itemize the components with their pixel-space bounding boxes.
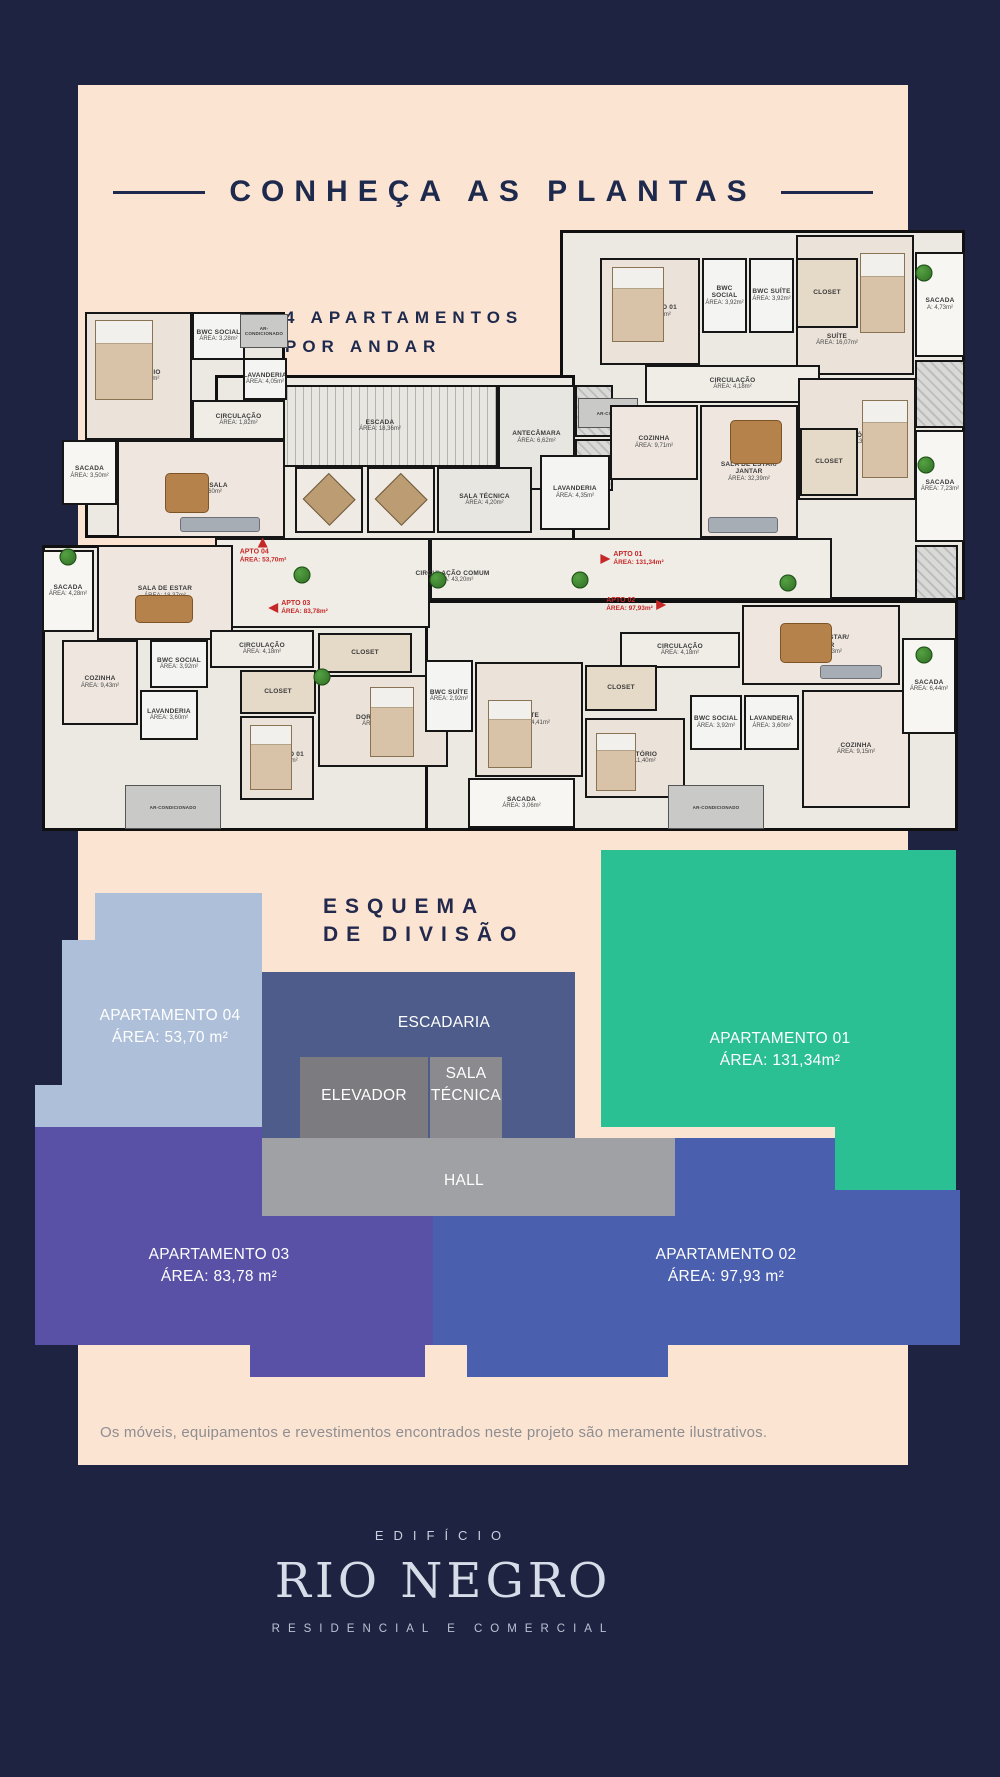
plan-room <box>915 545 958 600</box>
esquema-block-ap03 <box>250 1345 425 1377</box>
arrow-left-icon <box>268 603 278 613</box>
bed-furniture <box>596 733 636 791</box>
plan-room: CIRCULAÇÃOÁREA: 4,18m² <box>645 365 820 403</box>
plan-room: SACADAÁREA: 7,23m² <box>915 430 965 542</box>
plan-room: SALA DE ESTARÁREA: 18,37m² <box>97 545 233 640</box>
heading-line-1: ESQUEMA <box>323 893 524 921</box>
plan-room: AR-CONDICIONADO <box>125 785 221 829</box>
plan-room: CLOSET <box>240 670 316 714</box>
plant-icon <box>572 572 589 589</box>
bed-furniture <box>488 700 532 768</box>
footer-brand-name: RIO NEGRO <box>143 1555 743 1607</box>
plan-room: CLOSET <box>800 428 858 496</box>
esquema-block-ap02 <box>675 1138 835 1345</box>
plan-room: CLOSET <box>318 633 412 673</box>
plan-room: SALA TÉCNICAÁREA: 4,20m² <box>437 467 532 533</box>
plant-icon <box>314 669 331 686</box>
footer-building-label: EDIFÍCIO <box>143 1528 743 1543</box>
disclaimer-text: Os móveis, equipamentos e revestimentos … <box>100 1424 840 1441</box>
apto-marker: APTO 01ÁREA: 131,34m² <box>600 551 663 567</box>
plan-room: CLOSET <box>796 258 858 328</box>
plant-icon <box>780 575 797 592</box>
floor-plan: CIRCULAÇÃO COMUMÁREA: 43,20m²ESCADAÁREA:… <box>40 225 965 835</box>
sofa-furniture <box>820 665 882 679</box>
plan-room: CIRCULAÇÃOÁREA: 4,18m² <box>620 632 740 668</box>
esquema-label-escadaria: ESCADARIA <box>294 1012 594 1034</box>
plan-room: BWC SUÍTEÁREA: 2,92m² <box>425 660 473 732</box>
title-dash-left <box>113 191 205 194</box>
title-row: CONHEÇA AS PLANTAS <box>78 175 908 209</box>
plan-room: COZINHAÁREA: 9,43m² <box>62 640 138 725</box>
plan-room: CIRCULAÇÃOÁREA: 1,82m² <box>192 400 285 440</box>
esquema-label-ap03: APARTAMENTO 03ÁREA: 83,78 m² <box>69 1244 369 1288</box>
title-dash-right <box>781 191 873 194</box>
plan-room: SACADAÁREA: 3,50m² <box>62 440 117 505</box>
footer-logo: EDIFÍCIO RIO NEGRO RESIDENCIAL E COMERCI… <box>143 1528 743 1635</box>
esquema-label-sala-tecnica: SALATÉCNICA <box>316 1063 616 1107</box>
plan-room: COZINHAÁREA: 9,71m² <box>610 405 698 480</box>
apto-marker: APTO 02ÁREA: 97,93m² <box>606 597 666 613</box>
esquema-block-ap02 <box>467 1345 668 1377</box>
plan-room: ELEVADOR <box>367 467 435 533</box>
esquema-block-ap03 <box>35 1127 262 1216</box>
table-furniture <box>135 595 193 623</box>
heading-line-2: DE DIVISÃO <box>323 921 524 949</box>
plan-room: BWC SOCIALÁREA: 3,92m² <box>150 640 208 688</box>
plan-room: CLOSET <box>585 665 657 711</box>
esquema-label-ap04: APARTAMENTO 04ÁREA: 53,70 m² <box>20 1005 320 1049</box>
bed-furniture <box>370 687 414 757</box>
plan-room: BWC SOCIALÁREA: 3,28m² <box>192 312 245 360</box>
esquema-block-ap01 <box>835 850 956 1190</box>
esquema-block-ap01 <box>601 850 835 1127</box>
bed-furniture <box>862 400 908 478</box>
esquema-label-hall: HALL <box>314 1170 614 1192</box>
plant-icon <box>60 549 77 566</box>
plan-room: AR-CONDICIONADO <box>668 785 764 829</box>
plant-icon <box>430 572 447 589</box>
plan-room: CIRCULAÇÃO COMUMÁREA: 43,20m² <box>370 557 535 597</box>
plant-icon <box>294 567 311 584</box>
esquema-label-ap02: APARTAMENTO 02ÁREA: 97,93 m² <box>576 1244 876 1288</box>
table-furniture <box>780 623 832 663</box>
plan-room: ELEVADOR <box>295 467 363 533</box>
esquema-block-ap04 <box>95 893 262 940</box>
plan-room: BWC SUÍTEÁREA: 3,92m² <box>749 258 794 333</box>
bed-furniture <box>860 253 905 333</box>
bed-furniture <box>95 320 153 400</box>
esquema-label-ap01: APARTAMENTO 01ÁREA: 131,34m² <box>630 1028 930 1072</box>
plan-room: LAVANDERIAÁREA: 4,05m² <box>243 358 287 400</box>
page-title: CONHEÇA AS PLANTAS <box>229 175 756 209</box>
plant-icon <box>916 265 933 282</box>
plan-room: AR-CONDICIONADO <box>240 314 288 348</box>
arrow-up-icon <box>258 538 268 548</box>
division-scheme-heading: ESQUEMA DE DIVISÃO <box>323 893 524 949</box>
plan-room: BWC SOCIALÁREA: 3,92m² <box>690 695 742 750</box>
arrow-right-icon <box>656 600 666 610</box>
arrow-right-icon <box>600 554 610 564</box>
plan-room: ESCADAÁREA: 18,36m² <box>262 385 498 467</box>
plan-room: COZINHAÁREA: 9,15m² <box>802 690 910 808</box>
plan-room: SACADAÁREA: 3,06m² <box>468 778 575 828</box>
apto-marker: APTO 03ÁREA: 83,78m² <box>268 600 328 616</box>
plan-room <box>915 360 965 428</box>
plant-icon <box>918 457 935 474</box>
bed-furniture <box>612 267 664 342</box>
bed-furniture <box>250 725 292 790</box>
footer-tagline: RESIDENCIAL E COMERCIAL <box>143 1623 743 1635</box>
table-furniture <box>165 473 209 513</box>
table-furniture <box>730 420 782 464</box>
plan-room: CIRCULAÇÃOÁREA: 4,18m² <box>210 630 314 668</box>
plan-room: LAVANDERIAÁREA: 3,60m² <box>140 690 198 740</box>
sofa-furniture <box>708 517 778 533</box>
apto-marker: APTO 04ÁREA: 53,70m² <box>240 538 287 565</box>
plant-icon <box>916 647 933 664</box>
plan-room: BWC SOCIALÁREA: 3,92m² <box>702 258 747 333</box>
sofa-furniture <box>180 517 260 532</box>
plan-room: LAVANDERIAÁREA: 3,60m² <box>744 695 799 750</box>
plan-room: LAVANDERIAÁREA: 4,35m² <box>540 455 610 530</box>
